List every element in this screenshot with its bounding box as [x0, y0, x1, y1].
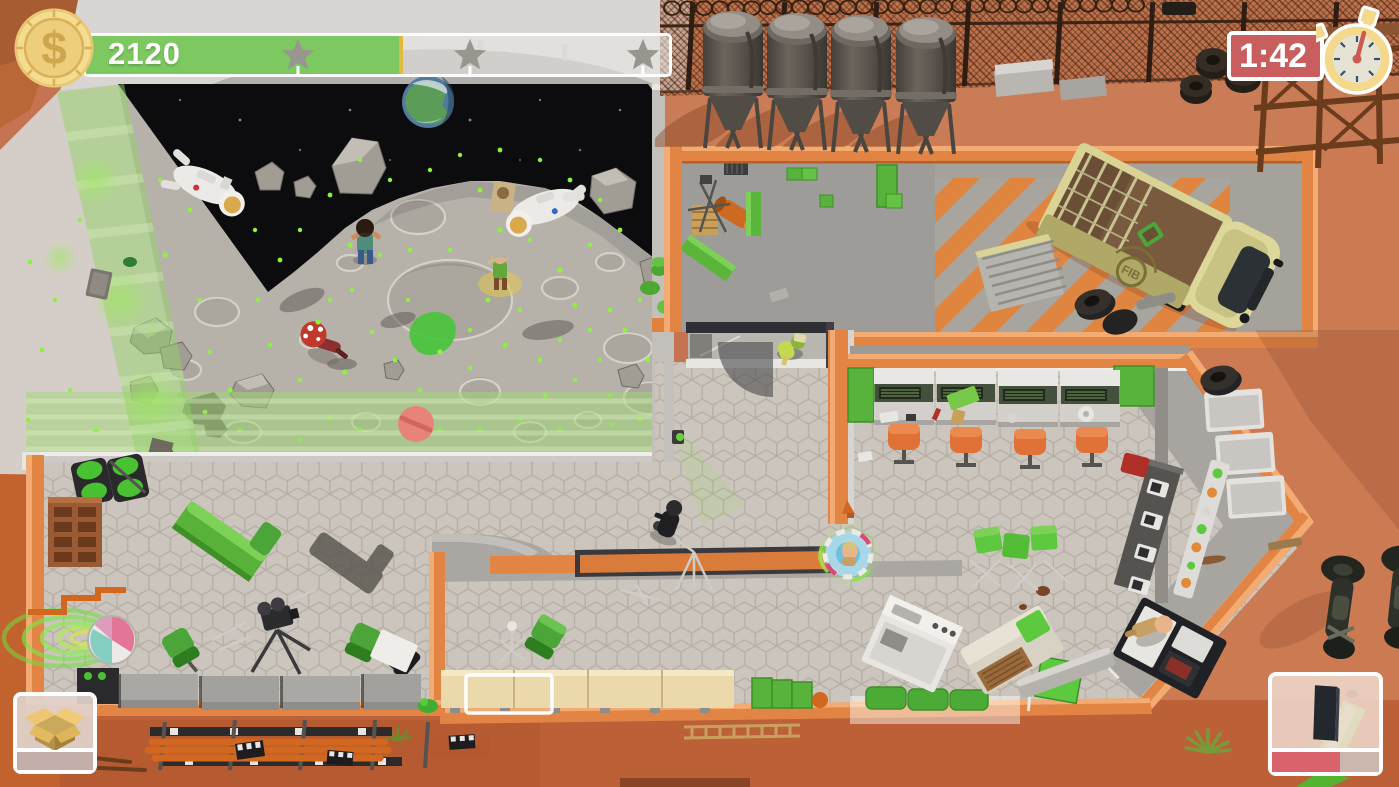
svg-text:$: $ — [41, 22, 67, 74]
